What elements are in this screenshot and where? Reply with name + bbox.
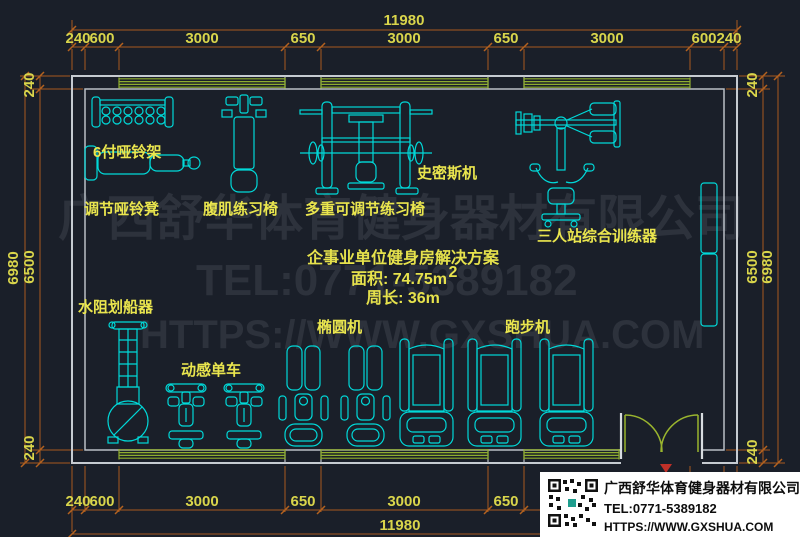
company-info-box: 广西舒华体育健身器材有限公司 TEL:0771-5389182 HTTPS://… bbox=[540, 472, 800, 537]
dim-left-seg: 6500 bbox=[21, 250, 38, 283]
dim-top-seg: 650 bbox=[290, 30, 315, 47]
dim-bottom-seg: 600 bbox=[89, 493, 114, 510]
dim-right-seg: 240 bbox=[744, 72, 761, 97]
watermark-website: HTTPS://WWW.GXSHUA.COM bbox=[140, 313, 704, 357]
solution-area: 面积: 74.75m bbox=[351, 270, 447, 288]
info-box-website: HTTPS://WWW.GXSHUA.COM bbox=[604, 520, 773, 534]
dim-top-seg: 240 bbox=[716, 30, 741, 47]
dim-top-seg: 600 bbox=[89, 30, 114, 47]
info-box-company: 广西舒华体育健身器材有限公司 bbox=[604, 480, 800, 496]
qr-code-icon bbox=[547, 478, 598, 528]
label-elliptical: 椭圆机 bbox=[317, 318, 362, 336]
dim-left-seg: 240 bbox=[21, 72, 38, 97]
dim-top-total: 11980 bbox=[384, 12, 425, 29]
info-box-tel: TEL:0771-5389182 bbox=[604, 501, 717, 516]
solution-title: 企事业单位健身房解决方案 bbox=[306, 248, 500, 267]
label-treadmill: 跑步机 bbox=[505, 318, 550, 336]
dim-right-total: 6980 bbox=[759, 250, 776, 283]
dim-bottom-total: 11980 bbox=[380, 517, 421, 534]
cad-floor-plan: 广西舒华体育健身器材有限公司 TEL:0771-5389182 HTTPS://… bbox=[0, 0, 800, 537]
label-dumbbell-bench: 调节哑铃凳 bbox=[84, 200, 159, 218]
solution-area-sup: 2 bbox=[449, 264, 458, 281]
floor-plan-svg: 广西舒华体育健身器材有限公司 TEL:0771-5389182 HTTPS://… bbox=[0, 0, 800, 537]
dim-top-seg: 650 bbox=[493, 30, 518, 47]
dim-bottom-seg: 650 bbox=[493, 493, 518, 510]
dim-top-seg: 3000 bbox=[387, 30, 420, 47]
label-ab-chair: 腹肌练习椅 bbox=[203, 200, 278, 218]
label-smith-machine: 史密斯机 bbox=[417, 164, 477, 182]
dim-bottom-seg: 3000 bbox=[387, 493, 420, 510]
dim-top-seg: 600 bbox=[691, 30, 716, 47]
dim-left-total: 6980 bbox=[5, 251, 22, 284]
dim-right-seg: 240 bbox=[744, 439, 761, 464]
label-dumbbell-rack: 6付哑铃架 bbox=[93, 143, 161, 161]
dim-top-seg: 3000 bbox=[590, 30, 623, 47]
dim-bottom-seg: 3000 bbox=[185, 493, 218, 510]
label-rower: 水阻划船器 bbox=[78, 298, 154, 316]
label-spin-bike: 动感单车 bbox=[181, 361, 241, 379]
dim-top-seg: 240 bbox=[65, 30, 90, 47]
solution-perimeter: 周长: 36m bbox=[366, 288, 440, 307]
dim-bottom-seg: 650 bbox=[290, 493, 315, 510]
dim-left-seg: 240 bbox=[21, 435, 38, 460]
dim-top-seg: 3000 bbox=[185, 30, 218, 47]
dim-bottom-seg: 240 bbox=[65, 493, 90, 510]
label-multi-bench: 多重可调节练习椅 bbox=[305, 200, 425, 218]
label-multi-station: 三人站综合训练器 bbox=[537, 227, 658, 245]
